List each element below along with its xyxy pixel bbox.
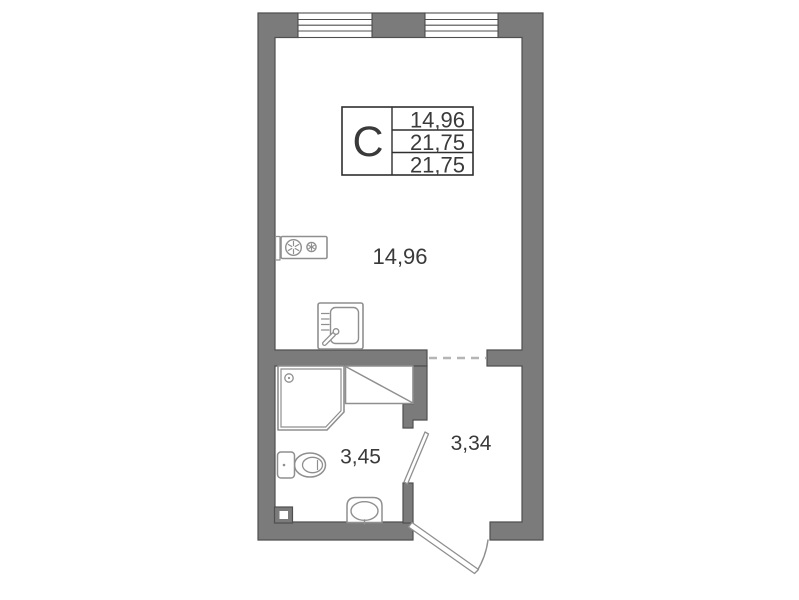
- unit-area-living: 14,96: [410, 108, 465, 133]
- unit-area-total: 21,75: [410, 130, 465, 155]
- wall-top-pier: [372, 13, 425, 38]
- bathroom-door: [404, 432, 429, 484]
- shower-icon: [278, 366, 344, 430]
- main-room-area-label: 14,96: [372, 244, 427, 269]
- bathroom-area-label: 3,45: [340, 446, 381, 469]
- window-right: [425, 13, 498, 38]
- floor-plan: C 14,96 21,75 21,75 14,96 3,45 3,34: [0, 0, 799, 600]
- wall-bathroom-right-lower: [403, 483, 413, 523]
- unit-info-box: C 14,96 21,75 21,75: [342, 107, 473, 178]
- kitchen-sink-icon: [318, 303, 363, 349]
- unit-area-total2: 21,75: [410, 153, 465, 178]
- unit-type-label: C: [352, 118, 383, 166]
- vent-shaft-hole: [280, 511, 289, 519]
- wall-right: [487, 13, 543, 540]
- closet-icon: [346, 366, 414, 404]
- toilet-icon: [278, 452, 326, 478]
- entry-door: [409, 523, 489, 574]
- stove-icon: [276, 237, 328, 261]
- hallway-area-label: 3,34: [451, 432, 492, 455]
- washbasin-icon: [347, 498, 382, 525]
- window-left: [298, 13, 372, 38]
- floor-plan-canvas: C 14,96 21,75 21,75 14,96 3,45 3,34: [0, 0, 799, 600]
